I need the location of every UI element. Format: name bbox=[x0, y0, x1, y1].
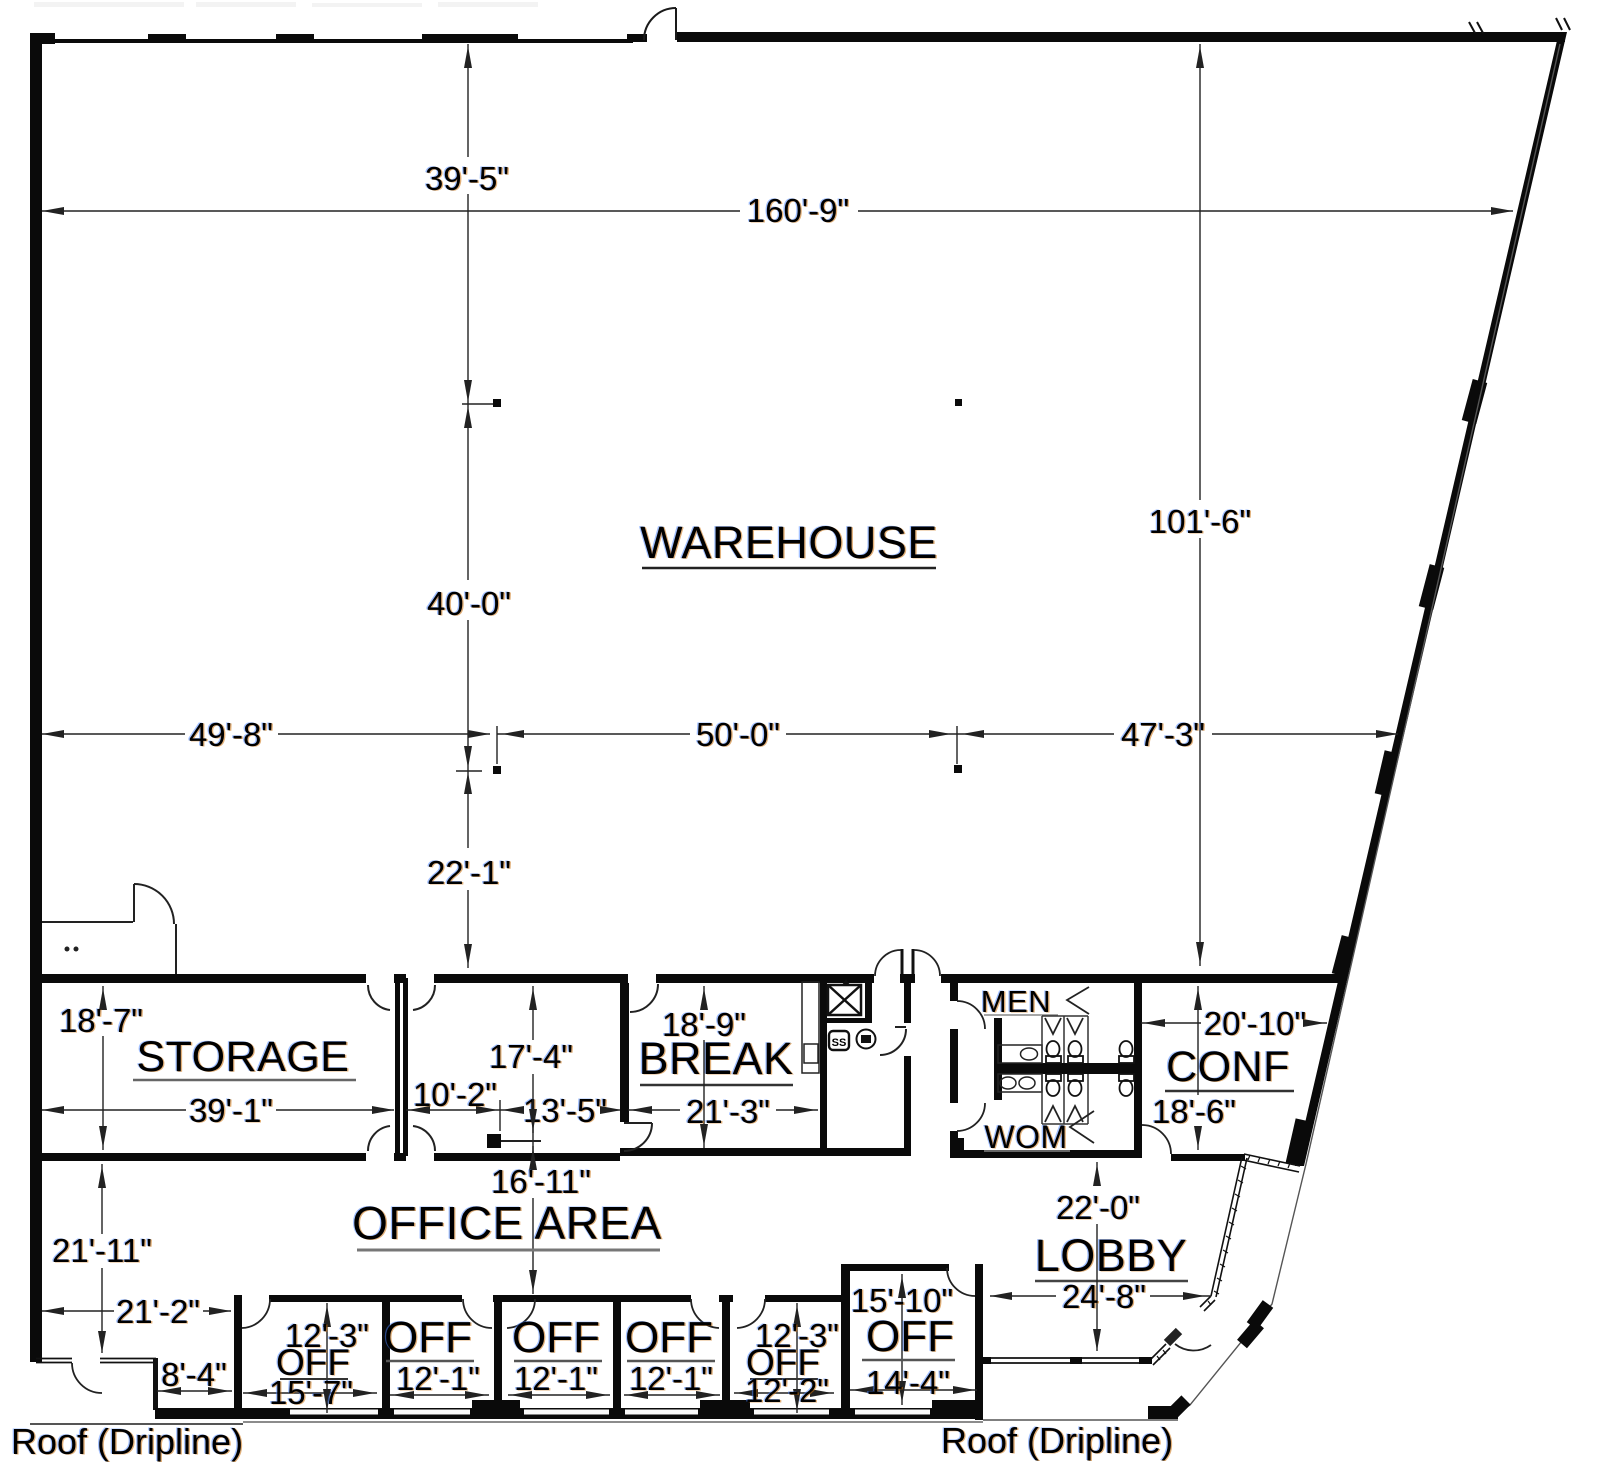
svg-text:39'-1": 39'-1" bbox=[189, 1092, 273, 1129]
svg-text:CONF: CONF bbox=[1166, 1043, 1290, 1091]
svg-text:21'-3": 21'-3" bbox=[686, 1093, 770, 1130]
svg-text:21'-2": 21'-2" bbox=[116, 1293, 200, 1330]
svg-text:160'-9": 160'-9" bbox=[747, 192, 849, 229]
svg-text:OFF: OFF bbox=[625, 1313, 713, 1362]
svg-text:STORAGE: STORAGE bbox=[137, 1033, 350, 1081]
svg-text:22'-1": 22'-1" bbox=[427, 854, 511, 891]
svg-text:Roof (Dripline): Roof (Dripline) bbox=[11, 1421, 243, 1462]
svg-text:OFFICE AREA: OFFICE AREA bbox=[352, 1197, 662, 1249]
svg-text:50'-0": 50'-0" bbox=[696, 716, 780, 753]
svg-text:Roof (Dripline): Roof (Dripline) bbox=[941, 1420, 1173, 1461]
svg-text:12'-1": 12'-1" bbox=[629, 1360, 713, 1397]
svg-text:15'-7": 15'-7" bbox=[269, 1374, 353, 1411]
svg-text:39'-5": 39'-5" bbox=[425, 160, 509, 197]
svg-text:LOBBY: LOBBY bbox=[1035, 1230, 1188, 1281]
svg-text:8'-4": 8'-4" bbox=[161, 1356, 227, 1393]
svg-text:40'-0": 40'-0" bbox=[427, 585, 511, 622]
svg-text:24'-8": 24'-8" bbox=[1062, 1278, 1146, 1315]
svg-text:WAREHOUSE: WAREHOUSE bbox=[640, 517, 938, 568]
svg-text:MEN: MEN bbox=[981, 984, 1051, 1019]
svg-text:49'-8": 49'-8" bbox=[189, 716, 273, 753]
svg-text:14'-4": 14'-4" bbox=[866, 1364, 950, 1401]
svg-text:18'-7": 18'-7" bbox=[59, 1002, 143, 1039]
svg-text:47'-3": 47'-3" bbox=[1121, 716, 1205, 753]
svg-text:12'-1": 12'-1" bbox=[514, 1360, 598, 1397]
svg-text:OFF: OFF bbox=[512, 1313, 600, 1362]
svg-text:16'-11": 16'-11" bbox=[491, 1163, 591, 1200]
svg-text:10'-2": 10'-2" bbox=[413, 1076, 497, 1113]
svg-text:17'-4": 17'-4" bbox=[489, 1038, 573, 1075]
svg-text:18'-6": 18'-6" bbox=[1152, 1093, 1236, 1130]
svg-text:OFF: OFF bbox=[384, 1313, 472, 1362]
svg-text:20'-10": 20'-10" bbox=[1204, 1005, 1306, 1042]
svg-text:12'-2": 12'-2" bbox=[745, 1372, 829, 1409]
svg-text:21'-11": 21'-11" bbox=[52, 1232, 152, 1269]
svg-text:OFF: OFF bbox=[866, 1312, 954, 1361]
svg-text:SS: SS bbox=[832, 1037, 847, 1049]
svg-text:101'-6": 101'-6" bbox=[1149, 503, 1251, 540]
svg-text:18'-9": 18'-9" bbox=[662, 1006, 746, 1043]
svg-text:22'-0": 22'-0" bbox=[1056, 1189, 1140, 1226]
